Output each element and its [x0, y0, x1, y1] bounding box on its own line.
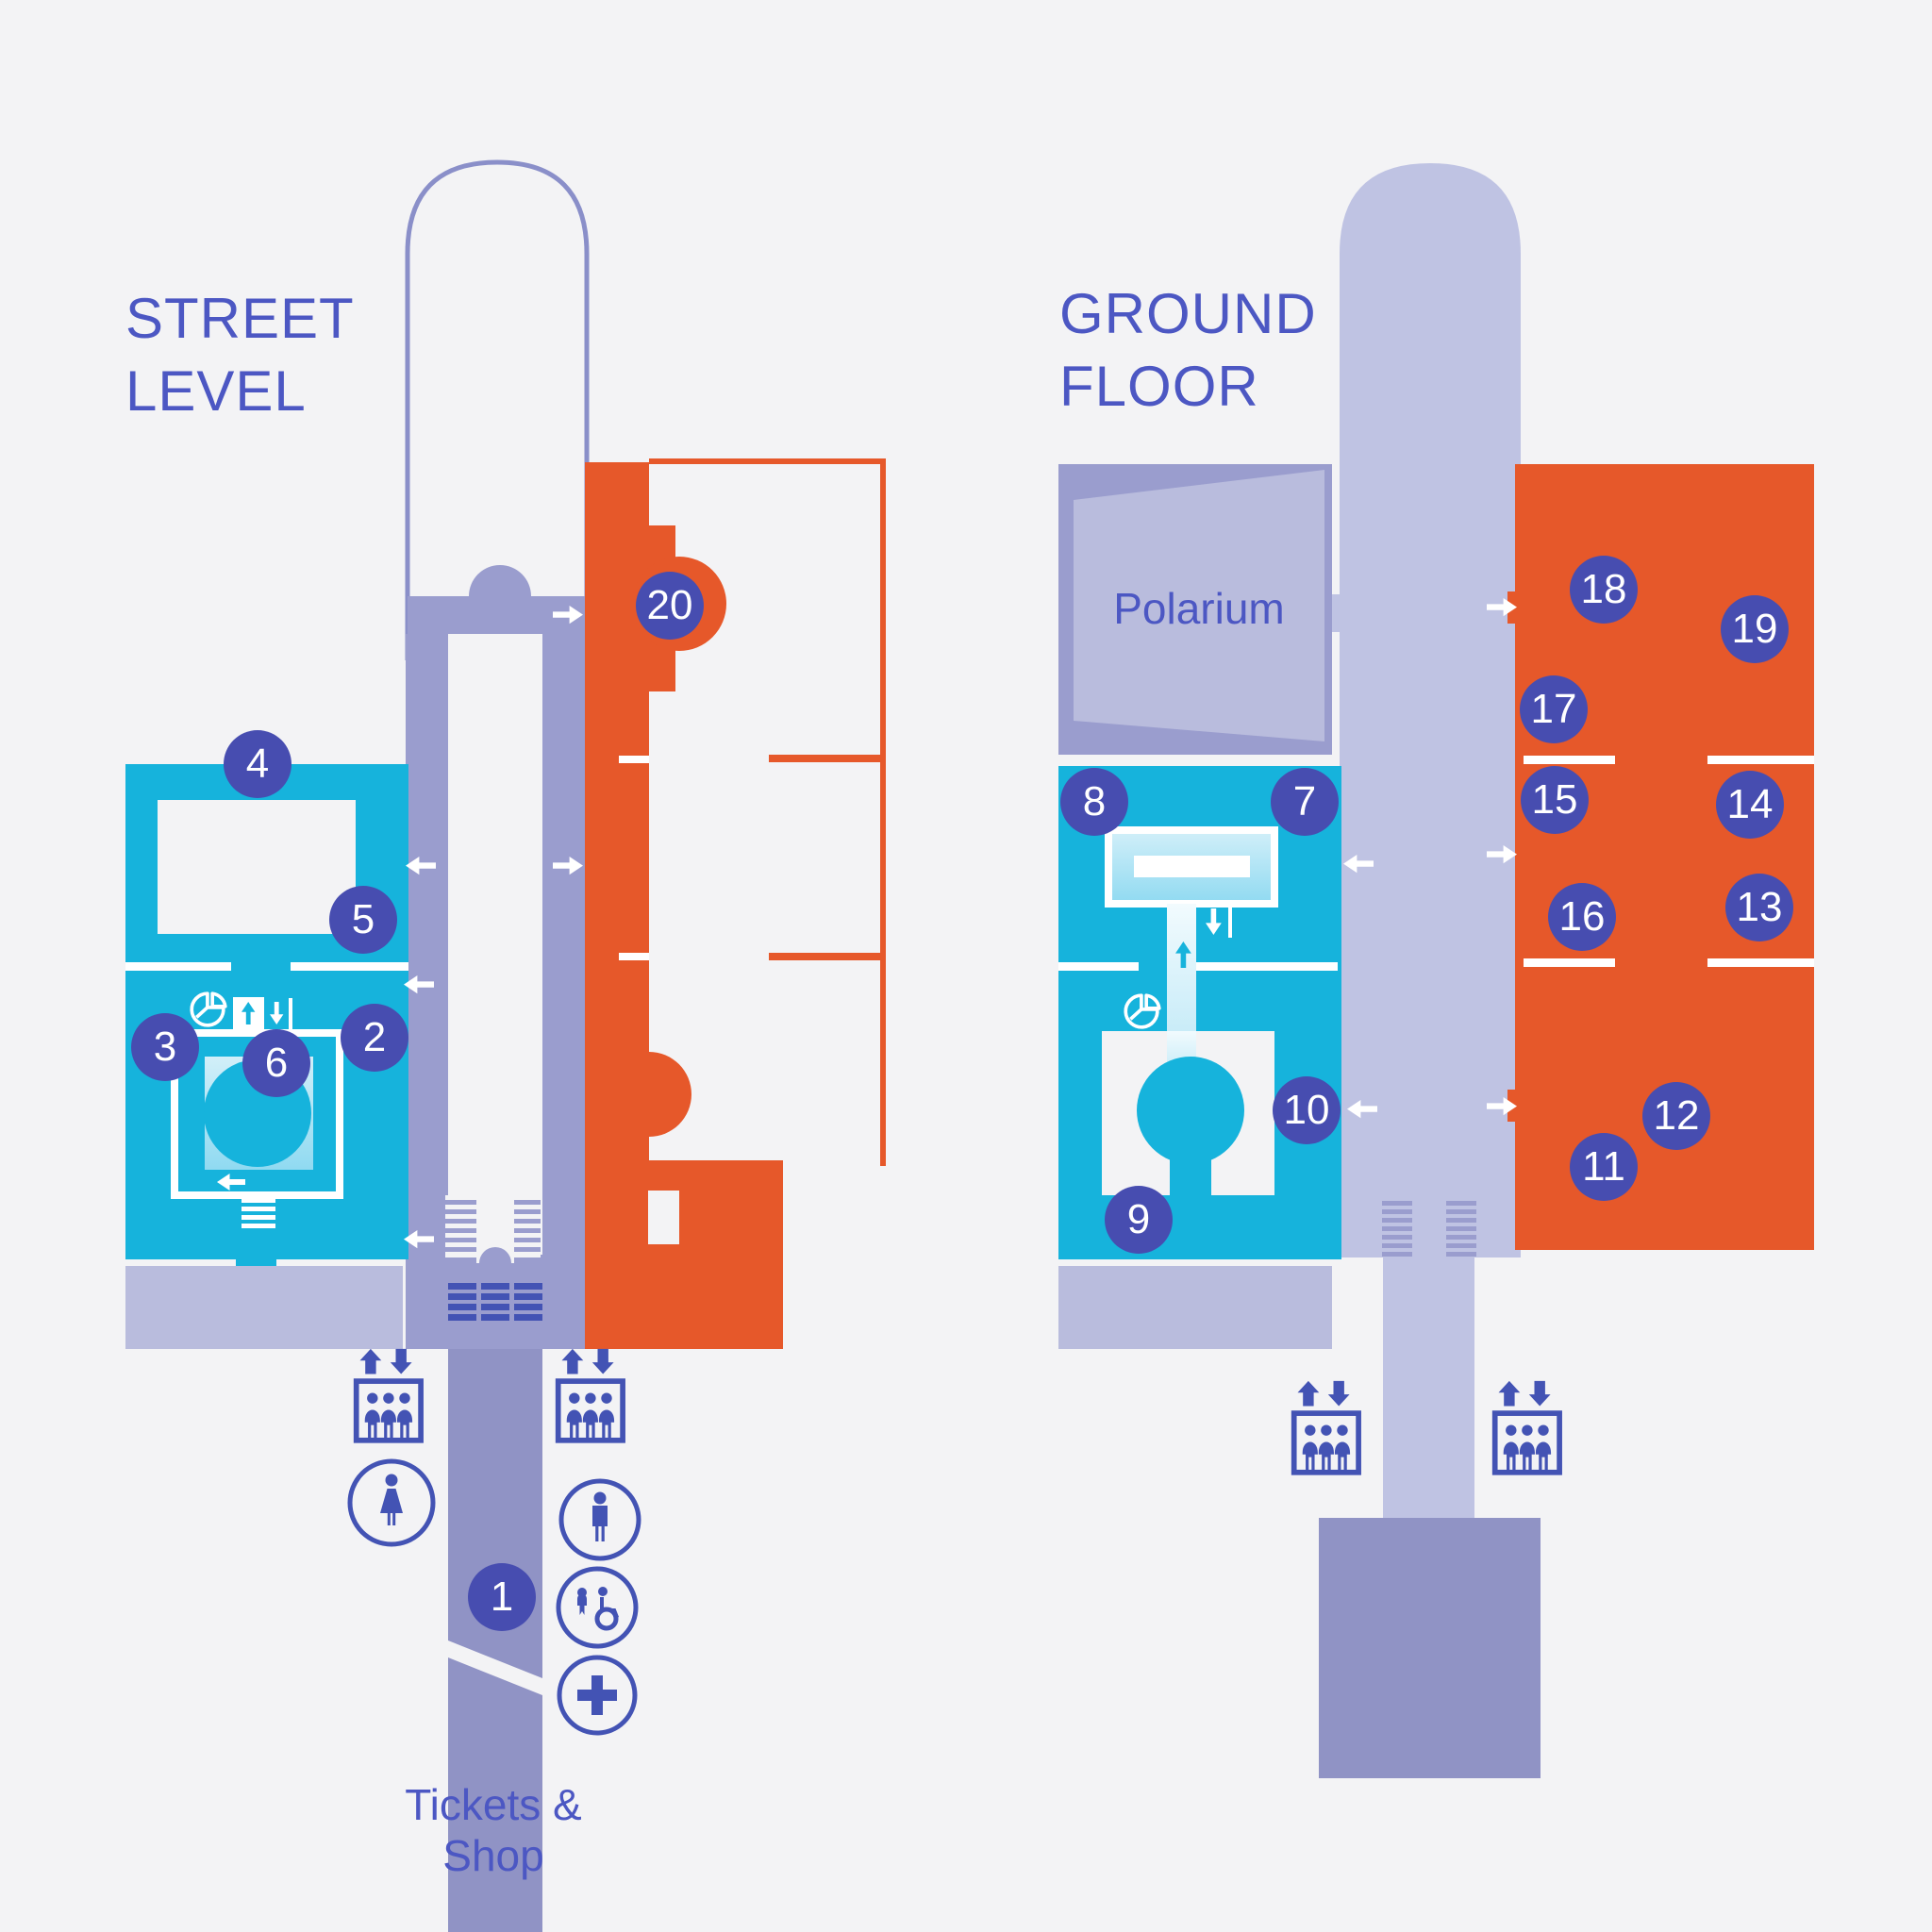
- elevator-icon: [558, 1349, 623, 1441]
- entrance-block: [1319, 1518, 1541, 1778]
- wall: [1524, 958, 1615, 967]
- marker-8: 8: [1060, 768, 1128, 836]
- marker-14: 14: [1716, 771, 1784, 839]
- marker-17: 17: [1520, 675, 1588, 743]
- marker-18: 18: [1570, 556, 1638, 624]
- marker-5: 5: [329, 886, 397, 954]
- room-4-interior: [158, 800, 356, 934]
- wall: [1707, 958, 1814, 967]
- elevator-icon: [1495, 1381, 1559, 1473]
- street-level-title: STREET LEVEL: [125, 283, 355, 428]
- wall-stub: [619, 756, 649, 763]
- wall: [1058, 962, 1139, 971]
- marker-1: 1: [468, 1563, 536, 1631]
- wall: [649, 458, 886, 464]
- marker-15: 15: [1521, 766, 1589, 834]
- elevator-icon: [1294, 1381, 1358, 1473]
- doorway: [648, 1191, 679, 1244]
- tickets-shop-label: Tickets & Shop: [352, 1779, 635, 1881]
- side-band: [125, 1266, 403, 1349]
- elevator-icon: [357, 1349, 421, 1441]
- wall: [1196, 962, 1338, 971]
- marker-7: 7: [1271, 768, 1339, 836]
- wall: [291, 962, 408, 971]
- marker-6: 6: [242, 1029, 310, 1097]
- baby-change-accessible-icon: [558, 1569, 636, 1646]
- marker-9: 9: [1105, 1186, 1173, 1254]
- wall: [769, 953, 880, 960]
- marker-10: 10: [1273, 1076, 1341, 1144]
- wall-stub: [619, 953, 649, 960]
- marker-12: 12: [1642, 1082, 1710, 1150]
- wall: [1524, 756, 1615, 764]
- side-band: [1058, 1266, 1332, 1349]
- marker-11: 11: [1570, 1133, 1638, 1201]
- wall: [125, 962, 231, 971]
- gallery-cyan-block: [1058, 766, 1341, 1259]
- corridor-interior: [448, 634, 542, 1197]
- marker-4: 4: [224, 730, 291, 798]
- toilet-women-icon: [350, 1461, 433, 1544]
- marker-3: 3: [131, 1013, 199, 1081]
- central-corridor: [1340, 163, 1521, 1257]
- marker-2: 2: [341, 1004, 408, 1072]
- stairs-icon: [445, 1195, 541, 1263]
- polarium-label: Polarium: [1058, 583, 1341, 634]
- marker-13: 13: [1725, 874, 1793, 941]
- museum-floor-plan: STREET LEVEL GROUND FLOOR Polarium Ticke…: [0, 0, 1932, 1932]
- wall: [1707, 756, 1814, 764]
- lower-corridor: [1383, 1257, 1474, 1518]
- exhibit-bar: [1134, 856, 1250, 877]
- gallery-orange-block: [585, 458, 886, 1349]
- marker-19: 19: [1721, 595, 1789, 663]
- toilet-men-icon: [561, 1481, 639, 1558]
- marker-16: 16: [1548, 883, 1616, 951]
- ground-floor-title: GROUND FLOOR: [1059, 278, 1317, 424]
- wall: [880, 458, 886, 1166]
- first-aid-icon: [559, 1657, 635, 1733]
- marker-20: 20: [636, 572, 704, 640]
- wall: [769, 755, 880, 762]
- door-tab: [236, 1259, 276, 1266]
